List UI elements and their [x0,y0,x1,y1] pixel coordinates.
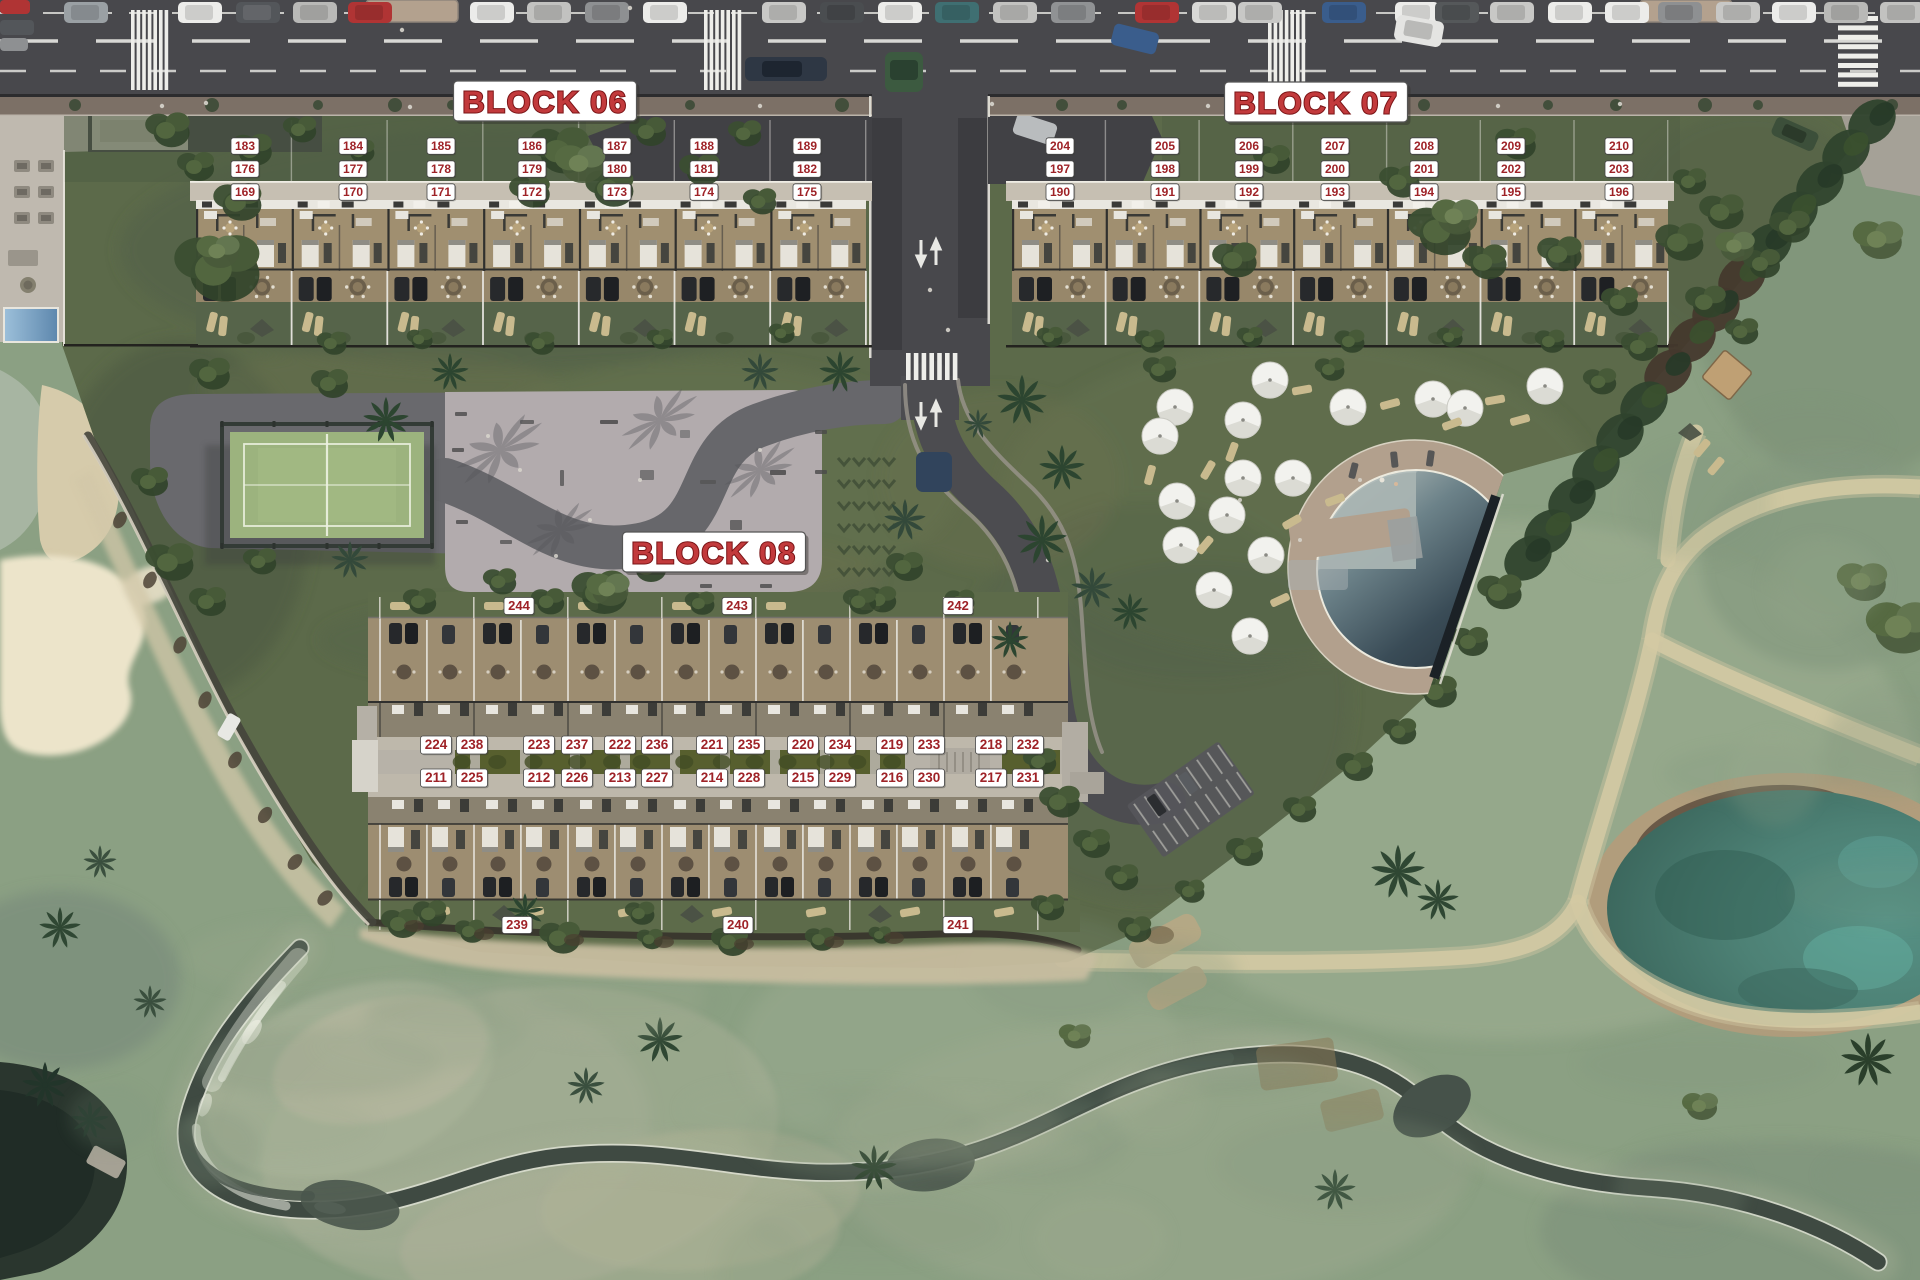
svg-text:BLOCK 08: BLOCK 08 [631,536,796,571]
svg-text:241: 241 [947,917,969,932]
svg-text:242: 242 [947,598,969,613]
svg-text:220: 220 [792,737,815,752]
svg-text:238: 238 [461,737,484,752]
svg-text:229: 229 [829,770,852,785]
svg-text:227: 227 [646,770,669,785]
svg-text:177: 177 [343,162,363,176]
svg-text:207: 207 [1325,139,1345,153]
svg-text:186: 186 [522,139,542,153]
svg-text:203: 203 [1609,162,1629,176]
svg-text:232: 232 [1017,737,1040,752]
svg-text:221: 221 [701,737,724,752]
svg-text:BLOCK 06: BLOCK 06 [462,85,627,120]
svg-text:208: 208 [1414,139,1434,153]
svg-text:184: 184 [343,139,363,153]
svg-text:169: 169 [235,185,255,199]
svg-text:228: 228 [738,770,761,785]
svg-text:182: 182 [797,162,817,176]
svg-text:240: 240 [727,917,749,932]
svg-text:235: 235 [738,737,761,752]
svg-text:206: 206 [1239,139,1259,153]
svg-text:230: 230 [918,770,941,785]
svg-text:172: 172 [522,185,542,199]
svg-text:202: 202 [1501,162,1521,176]
svg-text:226: 226 [566,770,589,785]
svg-text:179: 179 [522,162,542,176]
svg-text:243: 243 [726,598,748,613]
svg-text:214: 214 [701,770,724,785]
svg-text:170: 170 [343,185,363,199]
svg-text:218: 218 [980,737,1003,752]
svg-text:239: 239 [506,917,528,932]
svg-text:225: 225 [461,770,484,785]
svg-text:219: 219 [881,737,904,752]
svg-text:183: 183 [235,139,255,153]
svg-text:181: 181 [694,162,714,176]
svg-text:223: 223 [528,737,551,752]
svg-text:198: 198 [1155,162,1175,176]
svg-text:200: 200 [1325,162,1345,176]
svg-text:237: 237 [566,737,589,752]
svg-text:213: 213 [609,770,632,785]
svg-text:222: 222 [609,737,632,752]
svg-text:196: 196 [1609,185,1629,199]
svg-text:192: 192 [1239,185,1259,199]
svg-text:171: 171 [431,185,451,199]
svg-text:178: 178 [431,162,451,176]
svg-text:211: 211 [425,770,447,785]
svg-text:233: 233 [918,737,941,752]
svg-text:188: 188 [694,139,714,153]
svg-text:173: 173 [607,185,627,199]
svg-text:189: 189 [797,139,817,153]
svg-text:197: 197 [1050,162,1070,176]
svg-text:175: 175 [797,185,817,199]
svg-text:187: 187 [607,139,627,153]
svg-text:174: 174 [694,185,714,199]
svg-text:215: 215 [792,770,815,785]
svg-text:201: 201 [1414,162,1434,176]
svg-text:224: 224 [425,737,448,752]
svg-text:217: 217 [980,770,1003,785]
svg-text:191: 191 [1155,185,1175,199]
svg-text:231: 231 [1017,770,1040,785]
svg-text:BLOCK 07: BLOCK 07 [1233,86,1398,121]
svg-text:212: 212 [528,770,551,785]
svg-text:244: 244 [508,598,530,613]
svg-text:204: 204 [1050,139,1070,153]
svg-text:199: 199 [1239,162,1259,176]
svg-text:176: 176 [235,162,255,176]
svg-text:236: 236 [646,737,669,752]
svg-text:216: 216 [881,770,904,785]
svg-text:234: 234 [829,737,852,752]
svg-text:205: 205 [1155,139,1175,153]
svg-text:195: 195 [1501,185,1521,199]
svg-text:193: 193 [1325,185,1345,199]
svg-text:210: 210 [1609,139,1629,153]
svg-text:185: 185 [431,139,451,153]
svg-text:190: 190 [1050,185,1070,199]
svg-text:209: 209 [1501,139,1521,153]
svg-text:180: 180 [607,162,627,176]
svg-text:194: 194 [1414,185,1434,199]
